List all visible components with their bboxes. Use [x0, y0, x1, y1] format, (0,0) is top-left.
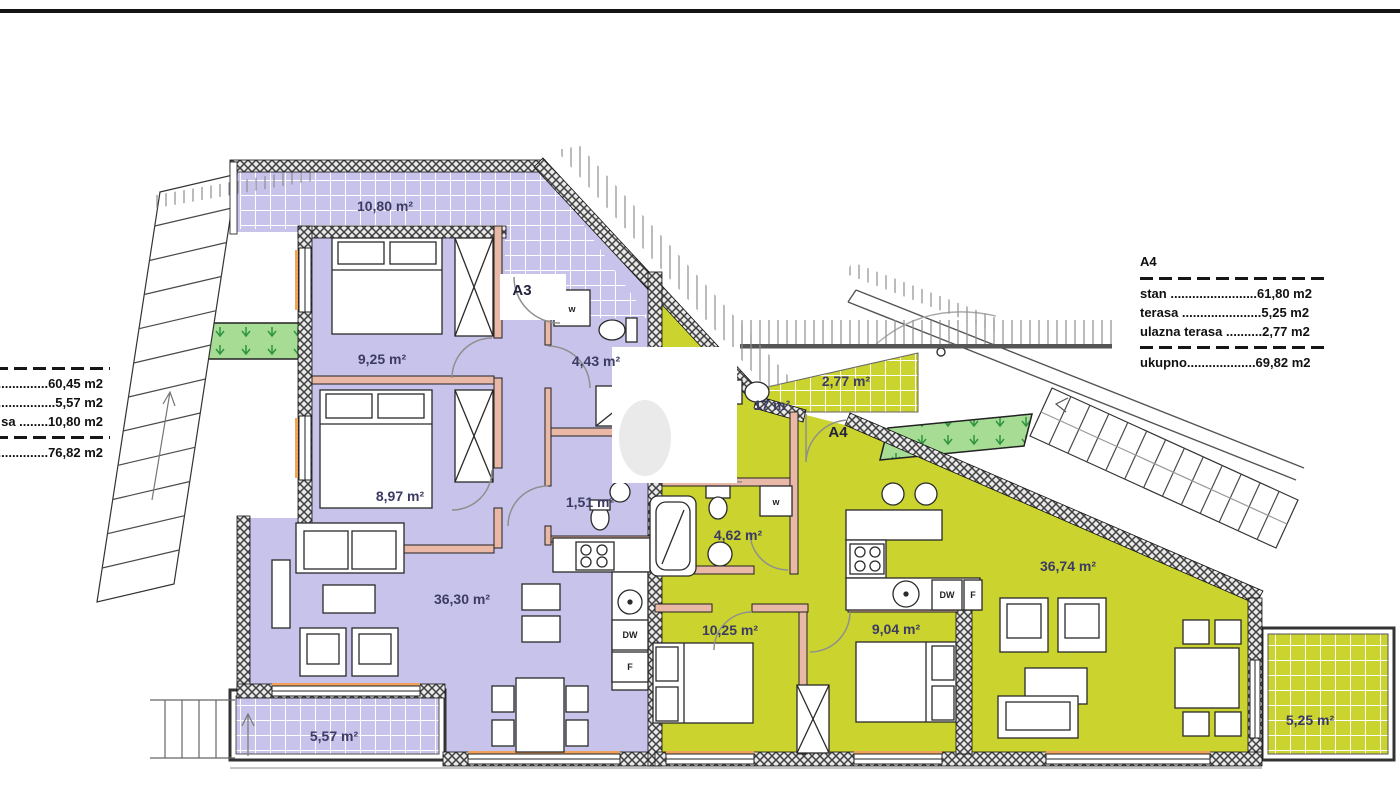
tv-cabinet-a3	[272, 560, 290, 628]
label-living-a3: 36,30 m²	[434, 591, 490, 607]
sofa-a3	[296, 523, 404, 573]
masked-area	[612, 347, 737, 483]
label-terrace-a4-right: 5,25 m²	[1286, 712, 1335, 728]
washer-label-a3: w	[567, 304, 576, 314]
label-terrace-a3-top: 10,80 m²	[357, 198, 413, 214]
fridge-label-a3: F	[627, 662, 633, 672]
armchair-a4-2	[1058, 598, 1106, 652]
label-wc17-a4: 17 m²	[754, 397, 791, 413]
label-terrace-a4-entry: 2,77 m²	[822, 373, 871, 389]
planter-left	[208, 323, 300, 359]
dishwasher-label-a3: DW	[623, 630, 638, 640]
sofa-a4	[998, 696, 1078, 738]
label-entrance-a4: A4	[828, 424, 848, 441]
terrace-a3-bottom	[230, 690, 445, 760]
wardrobe-a3-bottom	[455, 390, 493, 482]
dining-set-a4	[1175, 620, 1241, 736]
bed-a4-right	[856, 642, 956, 722]
label-bedroom-a4-right: 9,04 m²	[872, 621, 921, 637]
floor-plan-drawing: 10,80 m² 9,25 m² 8,97 m² 4,43 m² 1,51 m²…	[0, 0, 1400, 787]
label-bedroom-a3-bottom: 8,97 m²	[376, 488, 425, 504]
label-entrance-a3: A3	[512, 282, 531, 299]
label-living-a4: 36,74 m²	[1040, 558, 1096, 574]
terrace-a4-right	[1262, 628, 1394, 760]
wardrobe-a3-top	[455, 238, 493, 336]
armchair-a3-2	[352, 628, 398, 676]
armchair-a4-1	[1000, 598, 1048, 652]
label-wc-a3: 1,51 m²	[566, 494, 615, 510]
label-terrace-a3-bottom: 5,57 m²	[310, 728, 359, 744]
floor-plan-canvas: ..............60,45 m2 ................5…	[0, 0, 1400, 787]
coffee-table-a3	[323, 585, 375, 613]
armchair-a3-1	[300, 628, 346, 676]
dishwasher-label-a4: DW	[940, 590, 955, 600]
label-bathroom-a4: 4,62 m²	[714, 527, 763, 543]
stairs-left	[97, 174, 237, 602]
label-bedroom-a3-top: 9,25 m²	[358, 351, 407, 367]
bed-a3-top	[332, 238, 442, 334]
bed-a4-left	[653, 643, 753, 723]
wardrobe-a4	[797, 685, 829, 753]
label-bedroom-a4-left: 10,25 m²	[702, 622, 758, 638]
terrain-hatch-top-right	[740, 262, 1112, 349]
fridge-label-a4: F	[970, 590, 976, 600]
label-bathroom-a3: 4,43 m²	[572, 353, 621, 369]
bar-stool-a3-1	[522, 584, 560, 610]
bar-stool-a3-2	[522, 616, 560, 642]
washer-label-a4: w	[771, 497, 780, 507]
